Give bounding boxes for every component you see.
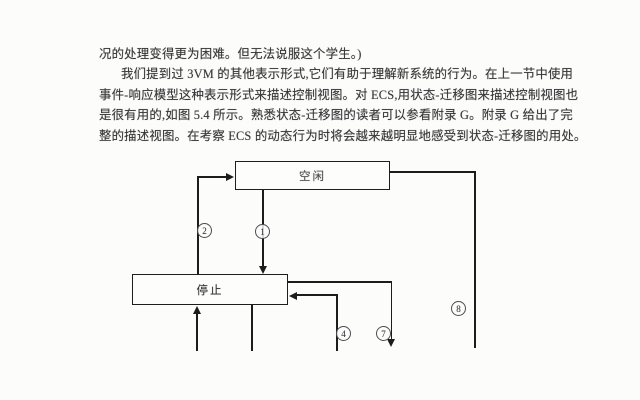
- edge-line-down: [251, 305, 253, 351]
- state-transition-diagram: 空闲 停止 2 1 4 7 8: [0, 0, 640, 400]
- scanned-book-page: 况的处理变得更为困难。但无法说服这个学生。) 我们提到过 3VM 的其他表示形式…: [0, 0, 640, 400]
- edge-line-2: [197, 176, 228, 178]
- state-node-stop: 停止: [132, 274, 288, 305]
- state-node-top: 空闲: [235, 161, 390, 190]
- arrowhead-down-icon: [387, 339, 395, 347]
- arrowhead-right-icon: [226, 173, 234, 181]
- transition-number-2: 2: [197, 223, 212, 238]
- edge-line-4: [336, 294, 338, 351]
- transition-number-7: 7: [376, 326, 391, 341]
- transition-number-8: 8: [451, 301, 466, 316]
- edge-line-4: [296, 294, 338, 296]
- edge-line-8: [390, 171, 475, 173]
- arrowhead-down-icon: [259, 266, 267, 274]
- transition-number-4: 4: [336, 326, 351, 341]
- state-node-stop-label: 停止: [197, 282, 224, 298]
- edge-line-8: [474, 171, 476, 348]
- transition-number-1: 1: [255, 224, 270, 239]
- edge-line-up: [196, 312, 198, 351]
- arrowhead-left-icon: [289, 292, 297, 300]
- state-node-top-label: 空闲: [299, 168, 326, 184]
- edge-line-7: [288, 281, 392, 283]
- arrowhead-up-icon: [193, 306, 201, 314]
